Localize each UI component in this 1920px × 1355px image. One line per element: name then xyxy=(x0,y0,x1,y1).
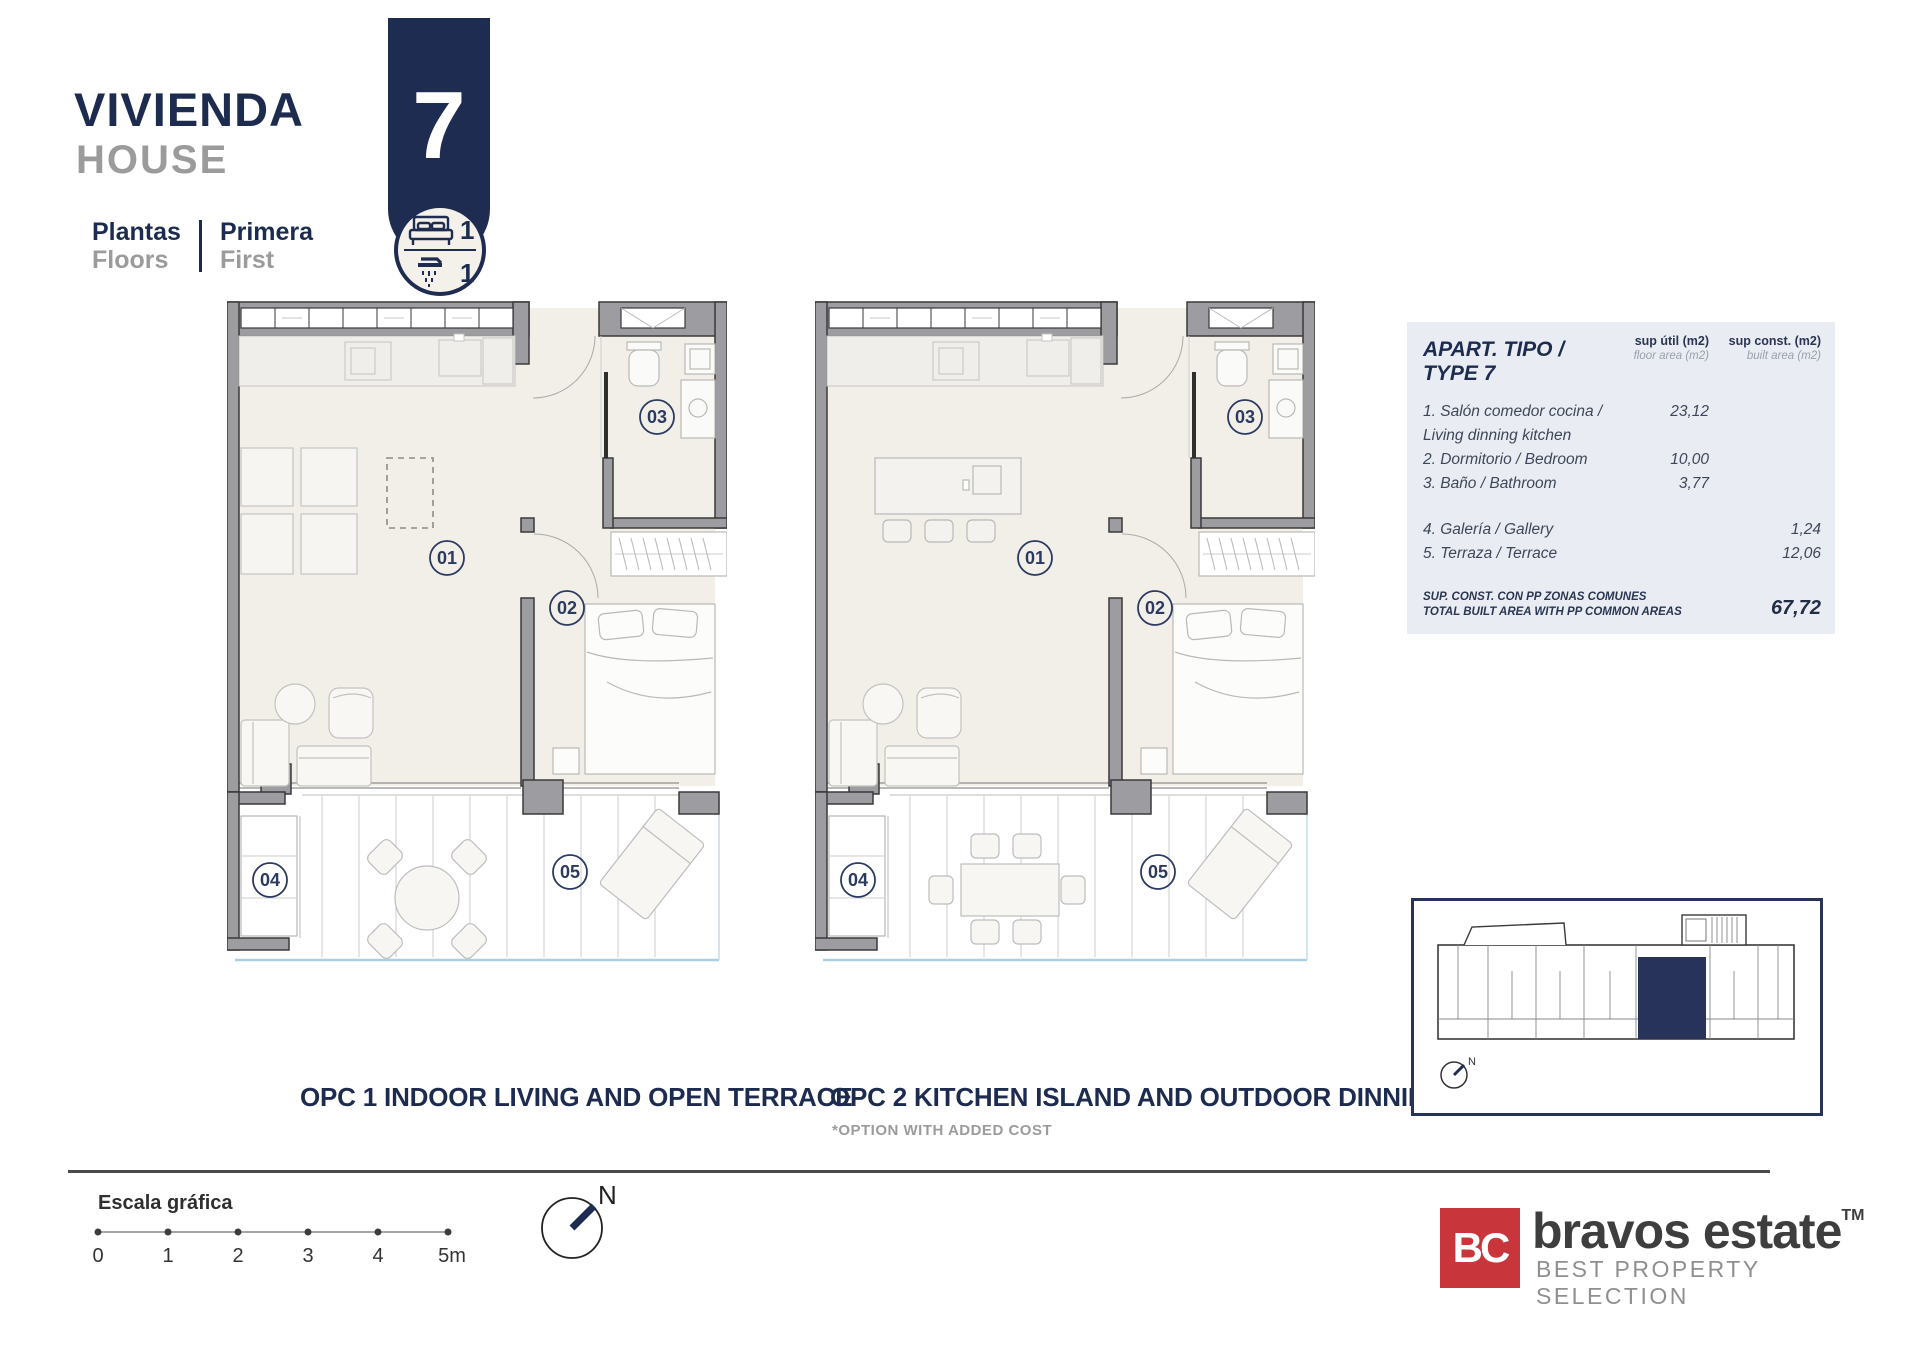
col-built-area-label: sup const. (m2) xyxy=(1709,334,1821,349)
area-table: APART. TIPO / TYPE 7 sup útil (m2) floor… xyxy=(1407,322,1835,634)
floors-label-en: Floors xyxy=(92,246,181,274)
minimap-north-label: N xyxy=(1468,1056,1476,1068)
minimap-compass-icon: N xyxy=(1441,1056,1476,1088)
row-built-area xyxy=(1709,400,1821,448)
row-floor-area: 3,77 xyxy=(1613,472,1709,496)
brochure-page: VIVIENDA HOUSE Plantas Floors Primera Fi… xyxy=(0,0,1920,1355)
col-built-area-sublabel: built area (m2) xyxy=(1709,349,1821,364)
page-title-es: VIVIENDA xyxy=(74,82,304,137)
total-label-en: TOTAL BUILT AREA WITH PP COMMON AREAS xyxy=(1423,605,1709,620)
row-floor-area xyxy=(1613,518,1709,542)
brand-tagline: BEST PROPERTY SELECTION xyxy=(1536,1256,1920,1310)
trademark-symbol: TM xyxy=(1841,1207,1864,1224)
row-label: 3. Baño / Bathroom xyxy=(1423,472,1613,496)
row-built-area: 12,06 xyxy=(1709,542,1821,566)
compass-north-label: N xyxy=(598,1180,617,1210)
row-label: 5. Terraza / Terrace xyxy=(1423,542,1613,566)
row-built-area xyxy=(1709,448,1821,472)
table-row: 5. Terraza / Terrace 12,06 xyxy=(1423,542,1821,566)
scale-bar: 0 1 2 3 4 5m xyxy=(90,1218,490,1268)
col-floor-area-label: sup útil (m2) xyxy=(1613,334,1709,349)
floor-value-es: Primera xyxy=(220,218,313,246)
row-label: 4. Galería / Gallery xyxy=(1423,518,1613,542)
scale-tick: 2 xyxy=(232,1245,243,1267)
area-table-title: APART. TIPO / TYPE 7 xyxy=(1423,334,1613,386)
floors-divider xyxy=(199,220,202,272)
north-compass: N xyxy=(530,1178,640,1288)
house-number: 7 xyxy=(388,78,490,174)
building-outline: N xyxy=(1414,901,1820,1113)
row-floor-area: 23,12 xyxy=(1613,400,1709,448)
highlighted-unit xyxy=(1638,957,1706,1039)
page-title-en: HOUSE xyxy=(76,138,228,183)
row-label: 1. Salón comedor cocina / Living dinning… xyxy=(1423,400,1613,448)
brand-logo-icon: BC xyxy=(1440,1208,1520,1288)
table-row: 3. Baño / Bathroom 3,77 xyxy=(1423,472,1821,496)
row-floor-area xyxy=(1613,542,1709,566)
floor-plan-opc2 xyxy=(815,252,1315,968)
scale-bar-label: Escala gráfica xyxy=(98,1192,233,1215)
row-built-area: 1,24 xyxy=(1709,518,1821,542)
footer-divider xyxy=(68,1170,1770,1173)
floor-plan-opc1 xyxy=(227,252,727,968)
scale-tick: 1 xyxy=(162,1245,173,1267)
total-built-area-value: 67,72 xyxy=(1709,597,1821,620)
opc2-title: OPC 2 KITCHEN ISLAND AND OUTDOOR DINNING xyxy=(830,1082,1447,1113)
table-row: 2. Dormitorio / Bedroom 10,00 xyxy=(1423,448,1821,472)
bed-icon xyxy=(410,217,452,245)
scale-tick: 5m xyxy=(438,1245,466,1267)
col-floor-area-sublabel: floor area (m2) xyxy=(1613,349,1709,364)
brand-monogram: BC xyxy=(1453,1224,1508,1272)
table-row: 1. Salón comedor cocina / Living dinning… xyxy=(1423,400,1821,448)
row-label: 2. Dormitorio / Bedroom xyxy=(1423,448,1613,472)
stair-tower xyxy=(1682,915,1746,945)
building-location-map: N xyxy=(1411,898,1823,1116)
total-label-es: SUP. CONST. CON PP ZONAS COMUNES xyxy=(1423,590,1709,605)
scale-tick: 4 xyxy=(372,1245,383,1267)
row-built-area xyxy=(1709,472,1821,496)
floors-label-es: Plantas xyxy=(92,218,181,246)
brand-name-text: bravos estate xyxy=(1532,1203,1841,1259)
scale-tick: 0 xyxy=(92,1245,103,1267)
brand-name: bravos estateTM xyxy=(1532,1202,1865,1260)
row-floor-area: 10,00 xyxy=(1613,448,1709,472)
opc1-title: OPC 1 INDOOR LIVING AND OPEN TERRACE xyxy=(300,1082,852,1113)
opc2-note: *OPTION WITH ADDED COST xyxy=(832,1122,1052,1139)
bedrooms-count: 1 xyxy=(460,215,474,245)
scale-tick: 3 xyxy=(302,1245,313,1267)
table-row: 4. Galería / Gallery 1,24 xyxy=(1423,518,1821,542)
opc2-terrace-dining-table xyxy=(929,834,1085,944)
